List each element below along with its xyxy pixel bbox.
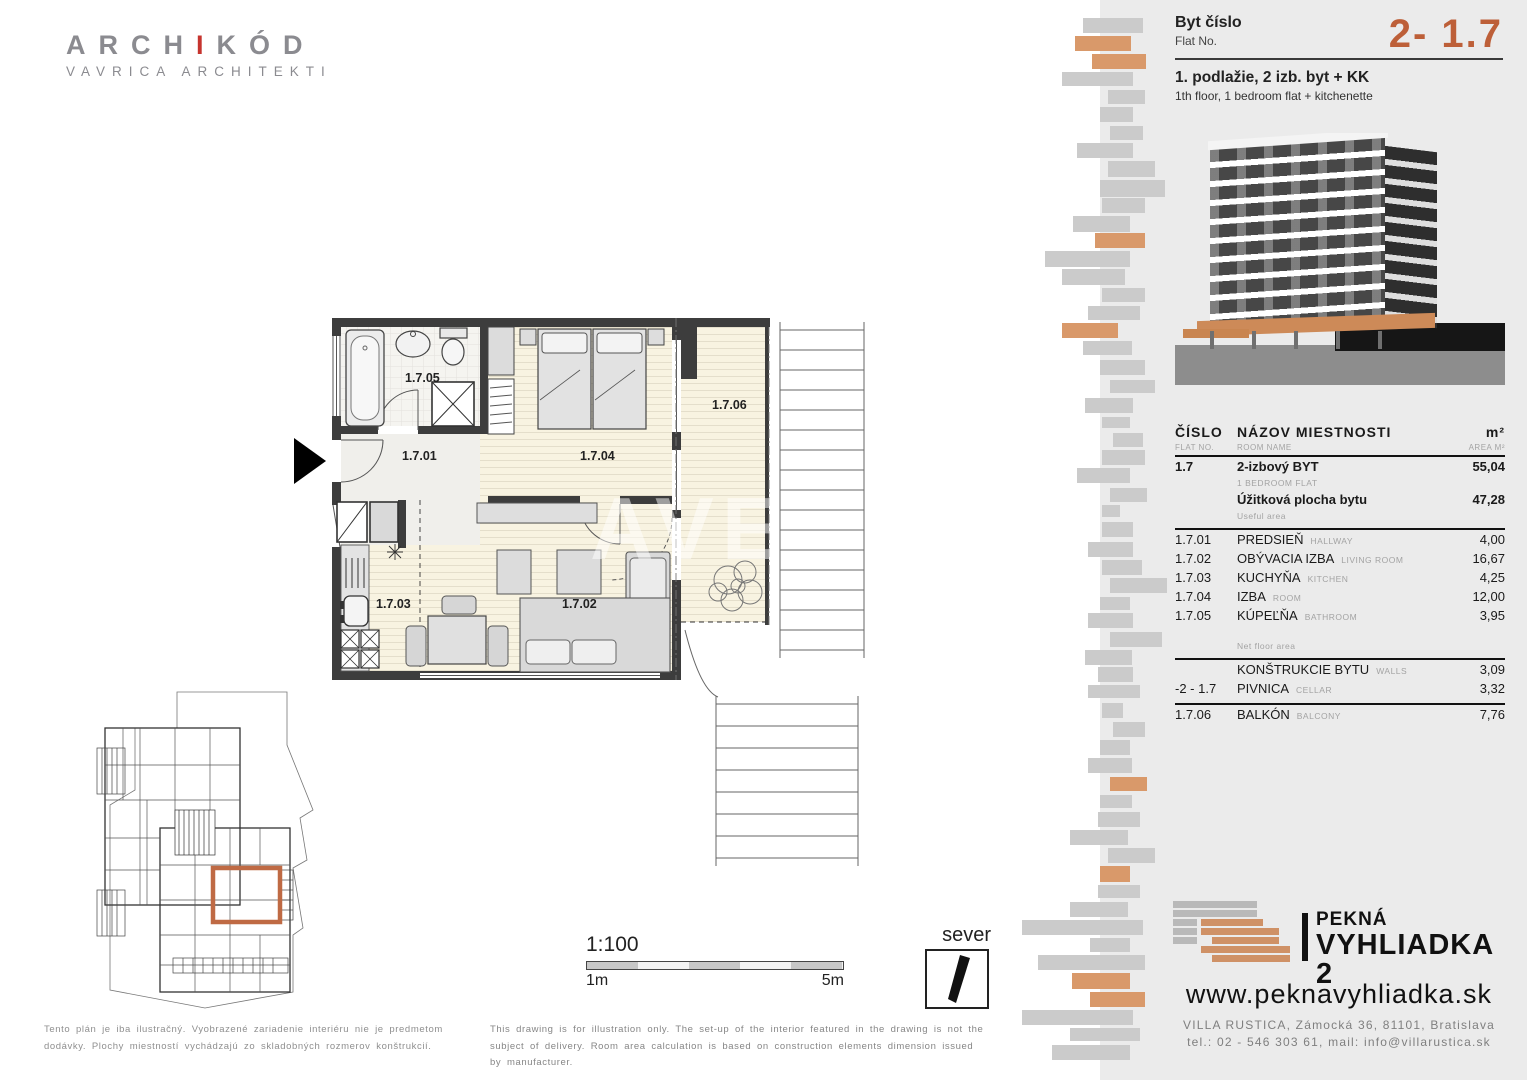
decor-bar <box>1085 398 1133 413</box>
decor-bar <box>1100 360 1145 375</box>
decor-bar <box>1062 269 1125 285</box>
decor-bar <box>1102 505 1120 517</box>
decor-bar <box>1092 54 1146 69</box>
decor-bar <box>1110 488 1147 502</box>
decor-bar <box>1110 380 1155 393</box>
net-floor-label: Net floor area <box>1237 641 1505 655</box>
useful-name: Úžitková plocha bytu <box>1237 492 1443 507</box>
decor-bar <box>1073 216 1130 232</box>
balcony-no: 1.7.06 <box>1175 707 1237 722</box>
decor-bar <box>1038 955 1145 970</box>
flat-no: 1.7 <box>1175 459 1237 474</box>
decor-bar <box>1062 72 1133 86</box>
col-number-sk: ČÍSLO <box>1175 424 1237 440</box>
decor-bar <box>1100 866 1130 882</box>
balcony-name: BALKÓNBALCONY <box>1237 707 1443 722</box>
decor-bar <box>1052 1045 1130 1060</box>
disclaimer-en: This drawing is for illustration only. T… <box>490 1022 990 1072</box>
label-kitchen: 1.7.03 <box>376 597 411 611</box>
flat-area: 55,04 <box>1443 459 1505 474</box>
room-rows: 1.7.01PREDSIEŇHALLWAY4,001.7.02OBÝVACIA … <box>1175 532 1505 627</box>
decor-bar <box>1102 703 1123 718</box>
decor-bar <box>1070 830 1128 845</box>
brand-footer: PEKNÁ VYHLIADKA 2 www.peknavyhliadka.sk … <box>1173 893 1505 1049</box>
table-row: -2 - 1.7PIVNICACELLAR3,32 <box>1175 681 1505 700</box>
disclaimer-sk: Tento plán je iba ilustračný. Vyobrazené… <box>44 1022 464 1055</box>
flat-number: 2- 1.7 <box>1389 12 1503 57</box>
archikod-logo: ARCHIKÓD VAVRICA ARCHITEKTI <box>66 30 332 79</box>
label-balcony: 1.7.06 <box>712 398 747 412</box>
lower-terrace-steps <box>685 630 858 866</box>
decor-bar <box>1083 18 1143 33</box>
render-ground <box>1175 345 1505 385</box>
col-area-en: AREA M² <box>1443 443 1505 452</box>
table-rule <box>1175 528 1505 530</box>
brand-line1: PEKNÁ <box>1316 910 1505 929</box>
decor-bar <box>1100 795 1132 808</box>
decor-bar <box>1102 560 1142 575</box>
render-pilotis <box>1210 331 1400 349</box>
decor-bar <box>1102 522 1133 537</box>
decor-bar <box>1110 578 1167 593</box>
floor-plan-drawing: 1.7.01 1.7.02 1.7.03 1.7.04 1.7.05 1.7.0… <box>280 300 880 880</box>
decor-bar <box>1022 920 1143 935</box>
table-rule <box>1175 703 1505 705</box>
decor-bar <box>1102 198 1145 213</box>
decor-bar <box>1070 902 1128 917</box>
flat-datasheet-page: ARCHIKÓD VAVRICA ARCHITEKTI <box>0 0 1527 1080</box>
decor-bar <box>1083 341 1132 355</box>
col-name-sk: NÁZOV MIESTNOSTI <box>1237 424 1443 440</box>
scale-ruler <box>586 961 844 970</box>
table-row: KONŠTRUKCIE BYTUWALLS3,09 <box>1175 662 1505 681</box>
balcony-area: 7,76 <box>1443 707 1505 722</box>
north-box <box>925 949 989 1009</box>
decor-bar <box>1110 126 1143 140</box>
bedroom-furniture <box>488 327 664 434</box>
decor-bar <box>1108 161 1155 177</box>
decor-bar <box>1113 722 1145 737</box>
label-hallway: 1.7.01 <box>402 449 437 463</box>
pekna-vyhliadka-logo-mark <box>1173 895 1303 967</box>
decor-bar <box>1100 180 1165 197</box>
table-row: 1.7.04IZBAROOM12,00 <box>1175 589 1505 608</box>
decor-bar <box>1102 288 1145 302</box>
north-label: sever <box>925 924 993 947</box>
header-divider <box>1175 58 1503 60</box>
decor-bar <box>1100 107 1133 122</box>
decor-bar <box>1102 417 1130 428</box>
table-rule <box>1175 455 1505 457</box>
render-side-facade <box>1385 146 1437 328</box>
decor-bar <box>1077 143 1133 158</box>
table-header: ČÍSLO FLAT NO. NÁZOV MIESTNOSTI ROOM NAM… <box>1175 424 1505 452</box>
scale-ratio: 1:100 <box>586 933 844 957</box>
table-row: 1.7.02OBÝVACIA IZBALIVING ROOM16,67 <box>1175 551 1505 570</box>
render-facade-windows <box>1210 137 1385 327</box>
building-render <box>1175 133 1505 393</box>
decor-bar <box>1085 650 1132 665</box>
floor-info-sk: 1. podlažie, 2 izb. byt + KK <box>1175 69 1503 87</box>
decor-bar <box>1098 885 1140 898</box>
decor-bar <box>1090 992 1145 1007</box>
label-bathroom: 1.7.05 <box>405 371 440 385</box>
logo-divider-bar <box>1302 913 1308 961</box>
scale-bar: 1:100 1m 5m <box>586 933 844 990</box>
company-address: VILLA RUSTICA, Zámocká 36, 81101, Bratis… <box>1173 1018 1505 1032</box>
table-row-flat: 1.7 2-izbový BYT 55,04 <box>1175 459 1505 478</box>
decor-bar <box>1088 613 1133 628</box>
entrance-arrow <box>294 438 326 484</box>
north-needle-icon <box>927 951 987 1007</box>
decor-bar <box>1113 433 1143 447</box>
flat-location-highlight <box>213 868 280 922</box>
decor-bar <box>1088 685 1140 698</box>
decor-bar <box>1075 36 1131 51</box>
label-living: 1.7.02 <box>562 597 597 611</box>
decor-bar <box>1077 468 1130 483</box>
archikod-wordmark: ARCHIKÓD <box>66 30 332 61</box>
col-name-en: ROOM NAME <box>1237 443 1443 452</box>
area-table: ČÍSLO FLAT NO. NÁZOV MIESTNOSTI ROOM NAM… <box>1175 424 1505 726</box>
decor-bar <box>1098 667 1133 682</box>
flat-name: 2-izbový BYT <box>1237 459 1443 474</box>
watermark: AVE <box>590 478 788 580</box>
floor-info-en: 1th floor, 1 bedroom flat + kitchenette <box>1175 89 1503 103</box>
decor-bar <box>1102 450 1145 465</box>
decor-bar <box>1098 812 1140 827</box>
decor-bar <box>1095 233 1145 248</box>
scale-min: 1m <box>586 972 608 990</box>
table-row: 1.7.01PREDSIEŇHALLWAY4,00 <box>1175 532 1505 551</box>
table-rule <box>1175 658 1505 660</box>
decor-bar <box>1070 1028 1140 1041</box>
decor-bar <box>1022 1010 1133 1025</box>
north-indicator: sever <box>925 924 993 1009</box>
terrace-railing <box>780 322 864 658</box>
decor-bar <box>1072 973 1130 989</box>
decor-bar <box>1062 323 1118 338</box>
decor-bar <box>1108 848 1155 863</box>
useful-name-en: Useful area <box>1237 511 1505 525</box>
decor-bar <box>1045 251 1130 267</box>
col-area-sk: m² <box>1443 424 1505 440</box>
table-row: 1.7.03KUCHYŇAKITCHEN4,25 <box>1175 570 1505 589</box>
archikod-subtitle: VAVRICA ARCHITEKTI <box>66 64 332 79</box>
decor-bar <box>1088 758 1132 773</box>
useful-area: 47,28 <box>1443 492 1505 507</box>
company-contact: tel.: 02 - 546 303 61, mail: info@villar… <box>1173 1035 1505 1049</box>
decor-bar <box>1108 90 1145 104</box>
brand-line2: VYHLIADKA 2 <box>1316 931 1505 989</box>
site-key-plan <box>55 690 330 1015</box>
decor-bar <box>1090 938 1130 952</box>
col-number-en: FLAT NO. <box>1175 443 1237 452</box>
table-row-useful: Úžitková plocha bytu 47,28 <box>1175 492 1505 511</box>
decor-bar <box>1088 542 1133 557</box>
decor-bar <box>1110 632 1162 647</box>
scale-max: 5m <box>822 972 844 990</box>
decor-bar <box>1100 597 1130 610</box>
table-row-balcony: 1.7.06 BALKÓNBALCONY 7,76 <box>1175 707 1505 726</box>
flat-header: Byt číslo Flat No. 2- 1.7 1. podlažie, 2… <box>1175 14 1503 103</box>
label-bedroom: 1.7.04 <box>580 449 615 463</box>
extra-rows: KONŠTRUKCIE BYTUWALLS3,09-2 - 1.7PIVNICA… <box>1175 662 1505 700</box>
table-row: 1.7.05KÚPEĽŇABATHROOM3,95 <box>1175 608 1505 627</box>
decor-bar <box>1100 740 1130 755</box>
decor-bar <box>1110 777 1147 791</box>
decor-bar <box>1088 306 1140 320</box>
flat-name-en: 1 BEDROOM FLAT <box>1237 478 1505 492</box>
